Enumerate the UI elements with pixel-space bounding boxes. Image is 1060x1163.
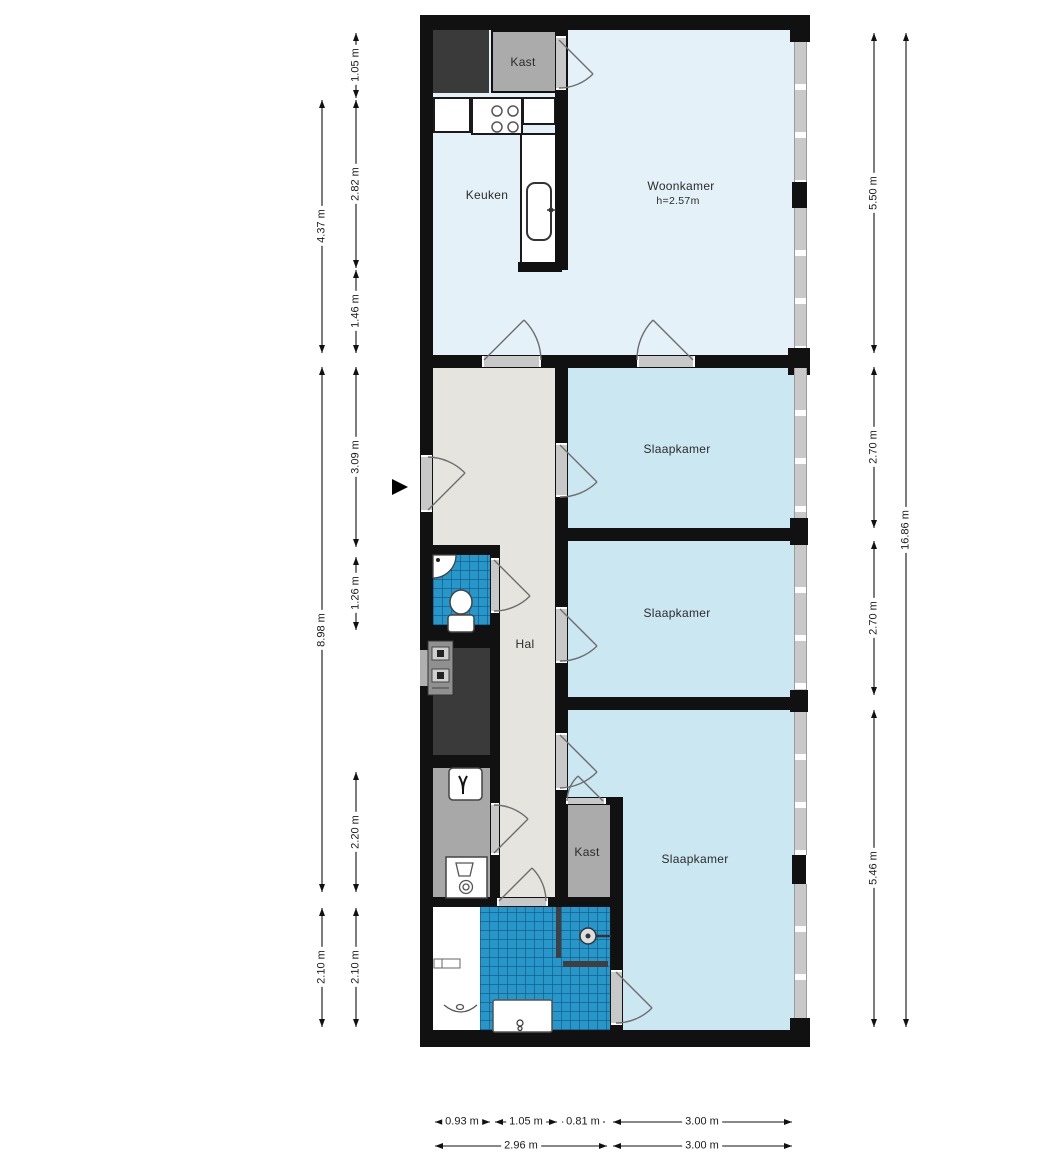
dim-label: 5.50 m (868, 173, 881, 213)
fixtures (428, 106, 611, 1032)
dim-label: 4.37 m (316, 206, 329, 246)
plan-overlay (0, 0, 1060, 1163)
dim-label: 2.10 m (350, 947, 363, 987)
dim-label: 1.05 m (506, 1116, 546, 1129)
stove-burners-icon (492, 106, 518, 132)
door-slaapkamer1-woonkamer (637, 320, 693, 360)
corner-sink-icon (433, 555, 456, 578)
dim-label: 3.00 m (682, 1140, 722, 1153)
dim-label: 2.20 m (350, 812, 363, 852)
room-label-keuken: Keuken (466, 188, 509, 202)
door-toilet (494, 560, 530, 611)
washing-machine-icon (446, 857, 487, 898)
toilet-icon (448, 590, 474, 632)
dim-label: 3.00 m (682, 1116, 722, 1129)
dim-label: 1.05 m (350, 45, 363, 85)
shower-icon (580, 928, 611, 944)
room-label-slaapkamer-2: Slaapkamer (643, 606, 710, 620)
meter-cupboard-icon (428, 641, 453, 695)
room-label-hal: Hal (516, 637, 535, 651)
door-slaapkamer-1 (560, 445, 597, 497)
door-hal-woonkamer (484, 320, 541, 360)
door-kast-boven (559, 40, 593, 88)
dim-label: 0.93 m (442, 1116, 482, 1129)
dim-label: 1.26 m (350, 573, 363, 613)
dim-label: 5.46 m (868, 848, 881, 888)
island-faucet-icon (547, 208, 556, 213)
door-kast-onder (567, 776, 603, 801)
dim-label: 2.10 m (316, 947, 329, 987)
shower-partition (563, 961, 608, 967)
room-label-kast-onder: Kast (574, 845, 599, 859)
room-label-slaapkamer-3: Slaapkamer (661, 852, 728, 866)
room-label-woonkamer: Woonkamer (647, 179, 714, 193)
shower-partition (556, 907, 561, 958)
dimension-lines (322, 33, 906, 1146)
entry-door (428, 457, 465, 510)
door-slaapkamer-3 (560, 735, 597, 788)
dim-label: 8.98 m (316, 610, 329, 650)
dim-label: 16.86 m (900, 507, 913, 553)
dim-label: 0.81 m (563, 1116, 603, 1129)
dim-label: 1.46 m (350, 291, 363, 331)
entrance-arrow-icon (392, 479, 408, 495)
bathtub-icon (493, 1000, 552, 1032)
boiler-icon (449, 768, 482, 800)
radiator-icon (434, 959, 460, 968)
door-bathroom (499, 868, 546, 901)
dim-label: 2.70 m (868, 427, 881, 467)
room-label-woonkamer-height: h=2.57m (656, 195, 699, 207)
door-bathroom-slaapkamer3 (616, 972, 652, 1023)
room-label-slaapkamer-1: Slaapkamer (643, 442, 710, 456)
dim-label: 3.09 m (350, 437, 363, 477)
dim-label: 2.70 m (868, 598, 881, 638)
door-utility (494, 805, 528, 853)
floor-plan: Keuken Woonkamer h=2.57m Hal Slaapkamer … (0, 0, 1060, 1163)
door-slaapkamer-2 (560, 609, 597, 661)
dim-label: 2.82 m (350, 164, 363, 204)
vanity-sink-icon (444, 1005, 477, 1013)
room-label-kast-boven: Kast (510, 55, 535, 69)
dim-label: 2.96 m (501, 1140, 541, 1153)
